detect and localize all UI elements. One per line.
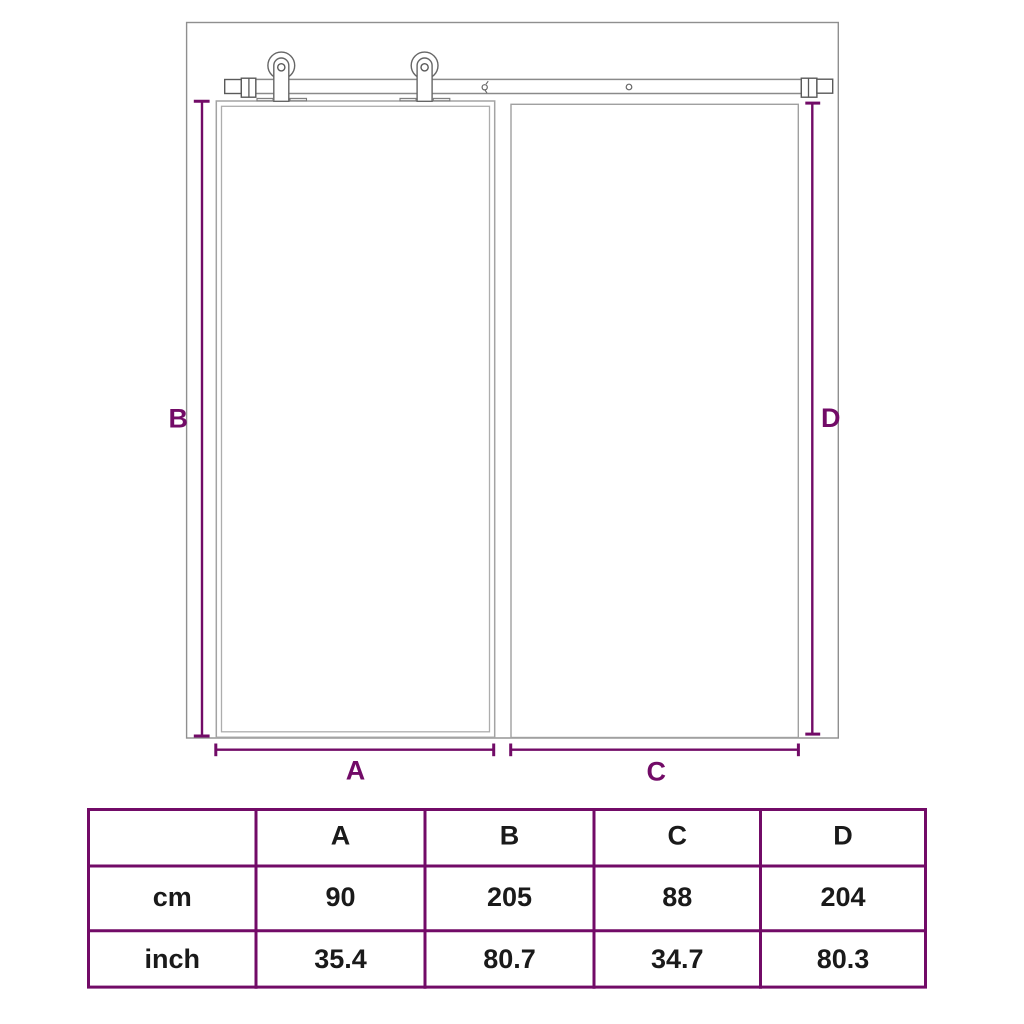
svg-text:A: A	[331, 820, 351, 850]
svg-text:A: A	[346, 755, 366, 785]
svg-text:C: C	[668, 820, 688, 850]
svg-text:cm: cm	[153, 882, 192, 912]
svg-text:D: D	[821, 403, 841, 433]
svg-text:205: 205	[487, 882, 532, 912]
svg-text:90: 90	[325, 882, 355, 912]
svg-text:B: B	[169, 404, 189, 434]
svg-text:inch: inch	[145, 944, 201, 974]
svg-text:204: 204	[820, 882, 865, 912]
svg-text:80.3: 80.3	[817, 944, 870, 974]
svg-text:88: 88	[662, 882, 692, 912]
svg-text:35.4: 35.4	[314, 944, 367, 974]
svg-text:80.7: 80.7	[483, 944, 536, 974]
svg-text:B: B	[500, 820, 520, 850]
svg-text:D: D	[833, 820, 853, 850]
svg-text:C: C	[647, 757, 667, 787]
svg-text:34.7: 34.7	[651, 944, 704, 974]
